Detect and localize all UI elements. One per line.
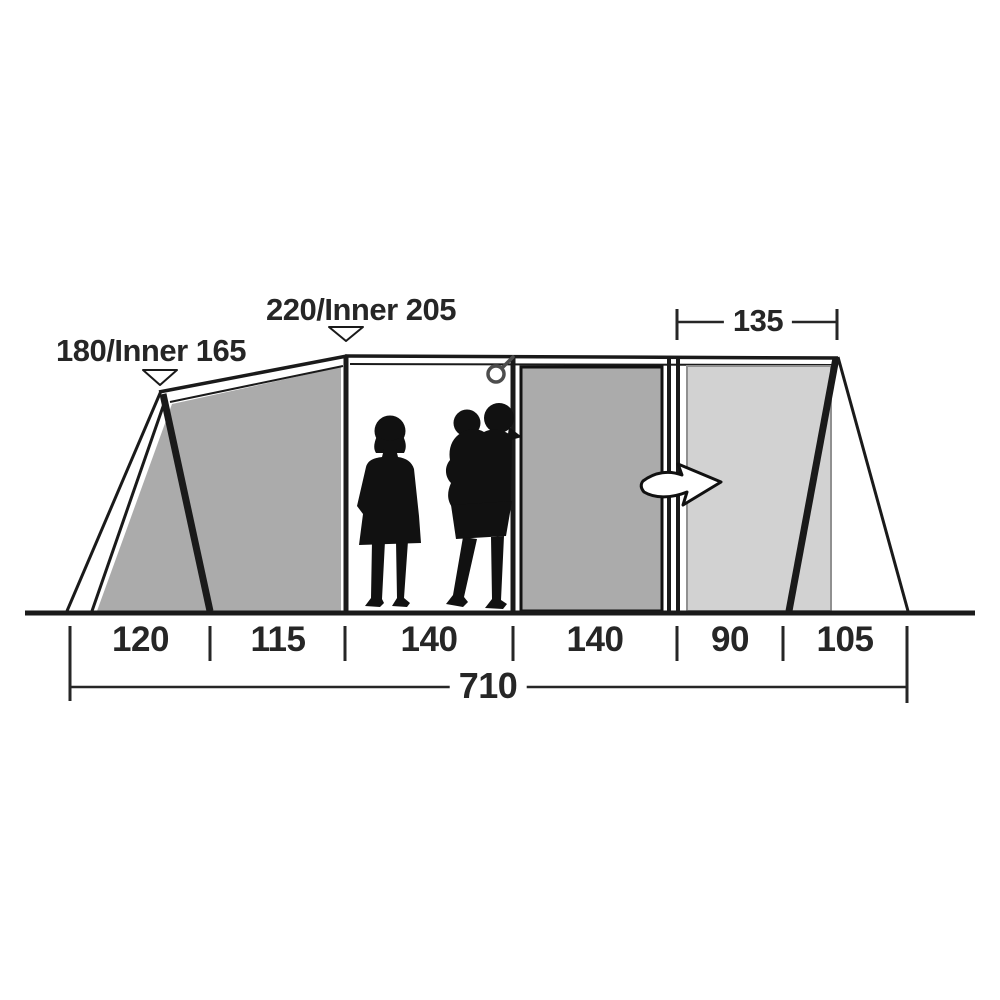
hanging-ring-icon: [488, 357, 513, 382]
segment-width-label-115: 115: [211, 620, 345, 660]
left-height-label: 180/Inner 165: [56, 333, 246, 369]
segment-width-label-140b: 140: [513, 620, 677, 660]
total-width-label: 710: [450, 665, 527, 707]
segment-width-label-120: 120: [70, 620, 211, 660]
center-height-marker-triangle-down-icon: [329, 327, 363, 341]
segment-width-label-140a: 140: [345, 620, 513, 660]
segment-width-label-105: 105: [783, 620, 907, 660]
right-guy-line: [838, 357, 908, 611]
roof-line: [345, 356, 838, 358]
person-standing-silhouette: [357, 416, 421, 608]
left-height-marker-triangle-down-icon: [143, 370, 177, 385]
center-height-label: 220/Inner 205: [266, 292, 456, 328]
roof-inner-line: [350, 364, 833, 365]
segment-width-label-90: 90: [677, 620, 783, 660]
tent-dimension-diagram: 180/Inner 165 220/Inner 205 135 120 115 …: [0, 0, 1000, 1000]
diagram-canvas: [0, 0, 1000, 1000]
door-width-label: 135: [724, 303, 792, 339]
